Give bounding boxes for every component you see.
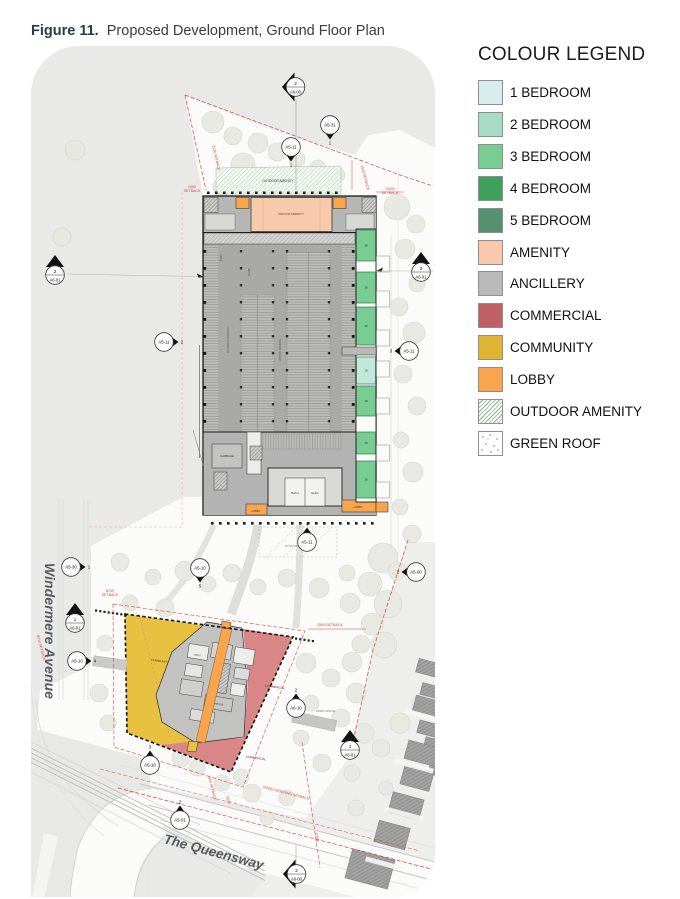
svg-text:2: 2 <box>181 340 184 345</box>
svg-text:A5-10: A5-10 <box>71 659 83 664</box>
svg-text:2: 2 <box>420 266 423 271</box>
svg-text:3B: 3B <box>364 324 367 328</box>
svg-text:SETBACK: SETBACK <box>184 189 201 193</box>
svg-text:3B: 3B <box>364 244 367 248</box>
svg-text:1: 1 <box>349 744 352 749</box>
svg-text:A6-01: A6-01 <box>345 752 357 757</box>
svg-text:2: 2 <box>54 269 57 274</box>
svg-text:1: 1 <box>88 565 91 570</box>
svg-text:VISITOR PARKING: VISITOR PARKING <box>278 339 282 362</box>
svg-text:OUTDOOR AMENITY: OUTDOOR AMENITY <box>262 179 294 183</box>
svg-text:A5-11: A5-11 <box>403 349 415 354</box>
svg-text:BATH: BATH <box>291 491 298 495</box>
svg-text:LOBBY: LOBBY <box>354 505 363 509</box>
svg-text:OPEN SPACE: OPEN SPACE <box>316 709 335 713</box>
svg-text:A5-11: A5-11 <box>158 340 170 345</box>
svg-text:INDOOR AMENITY: INDOOR AMENITY <box>278 212 304 216</box>
svg-text:2B: 2B <box>364 399 367 403</box>
svg-text:3B: 3B <box>364 286 367 290</box>
svg-text:A6-00: A6-00 <box>291 876 303 881</box>
svg-text:ELEC: ELEC <box>311 491 318 495</box>
svg-text:2: 2 <box>294 81 297 86</box>
svg-text:A5-10: A5-10 <box>194 566 206 571</box>
svg-text:2500 SETBACK: 2500 SETBACK <box>317 623 343 627</box>
svg-text:A5-11: A5-11 <box>285 145 297 150</box>
svg-text:A5-00: A5-00 <box>410 570 422 575</box>
svg-text:Windermere Avenue: Windermere Avenue <box>42 563 57 699</box>
svg-text:2: 2 <box>295 868 298 873</box>
svg-text:A6-01: A6-01 <box>50 277 62 282</box>
svg-text:SETBACK: SETBACK <box>102 593 119 597</box>
svg-text:A5-01: A5-01 <box>174 818 186 823</box>
svg-text:A6-01: A6-01 <box>416 274 428 279</box>
svg-text:1: 1 <box>329 141 332 146</box>
svg-text:RESIDENT PARKING: RESIDENT PARKING <box>226 327 230 352</box>
svg-text:A5-30: A5-30 <box>65 565 77 570</box>
svg-text:RAMP: RAMP <box>247 268 251 276</box>
svg-text:3B: 3B <box>364 478 367 482</box>
svg-text:A6-01: A6-01 <box>70 625 82 630</box>
svg-text:6000: 6000 <box>219 254 223 261</box>
svg-text:LOBBY: LOBBY <box>252 509 261 513</box>
svg-text:1B: 1B <box>364 369 367 373</box>
svg-text:SETBACK: SETBACK <box>382 191 399 195</box>
svg-text:A5-11: A5-11 <box>301 540 313 545</box>
svg-text:GARBAGE: GARBAGE <box>220 454 234 458</box>
svg-text:3B: 3B <box>364 441 367 445</box>
svg-text:1: 1 <box>74 617 77 622</box>
svg-text:A5-10: A5-10 <box>144 763 156 768</box>
svg-text:A6-00: A6-00 <box>290 89 302 94</box>
svg-text:A6-10: A6-10 <box>290 706 302 711</box>
svg-text:A5-31: A5-31 <box>324 123 336 128</box>
